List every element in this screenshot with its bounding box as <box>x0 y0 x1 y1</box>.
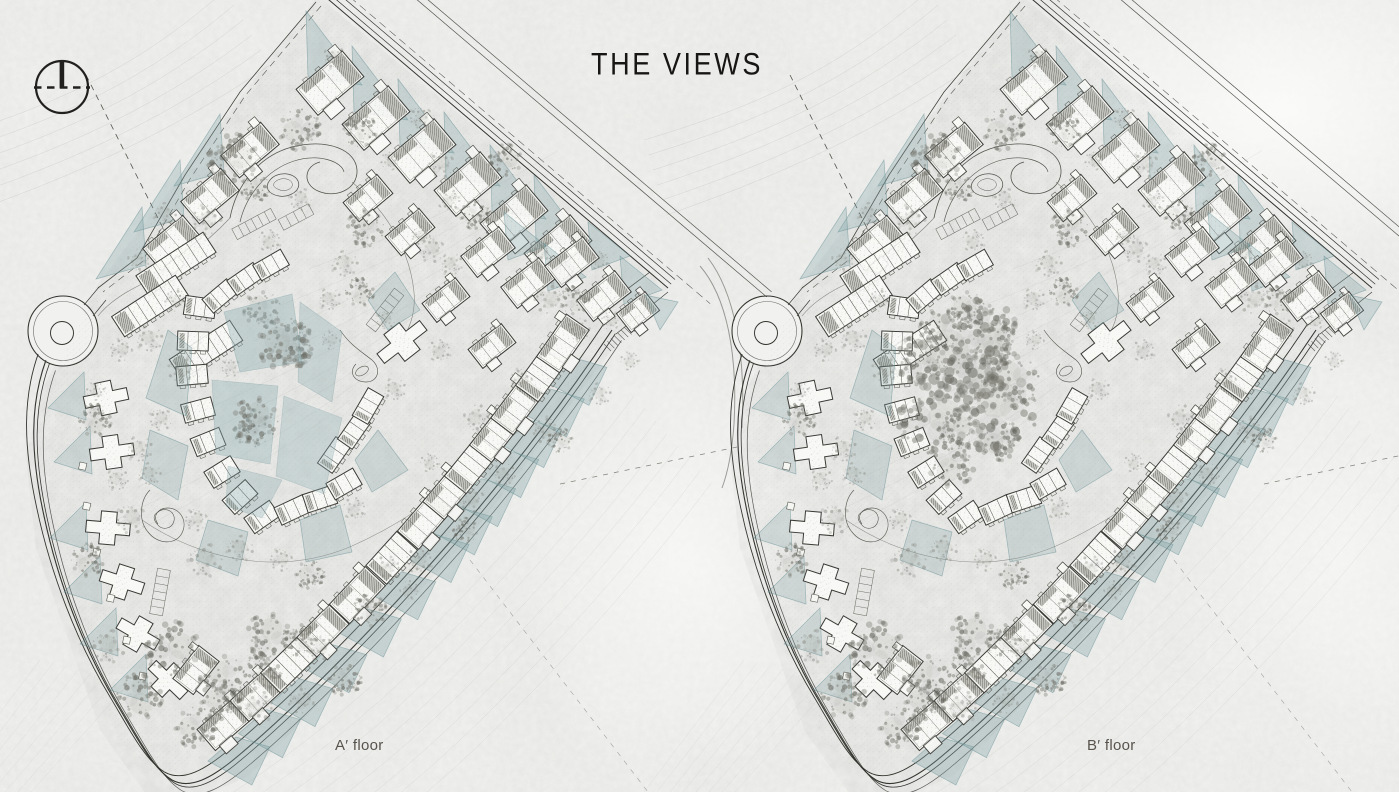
svg-text:THE VIEWS: THE VIEWS <box>591 46 763 82</box>
